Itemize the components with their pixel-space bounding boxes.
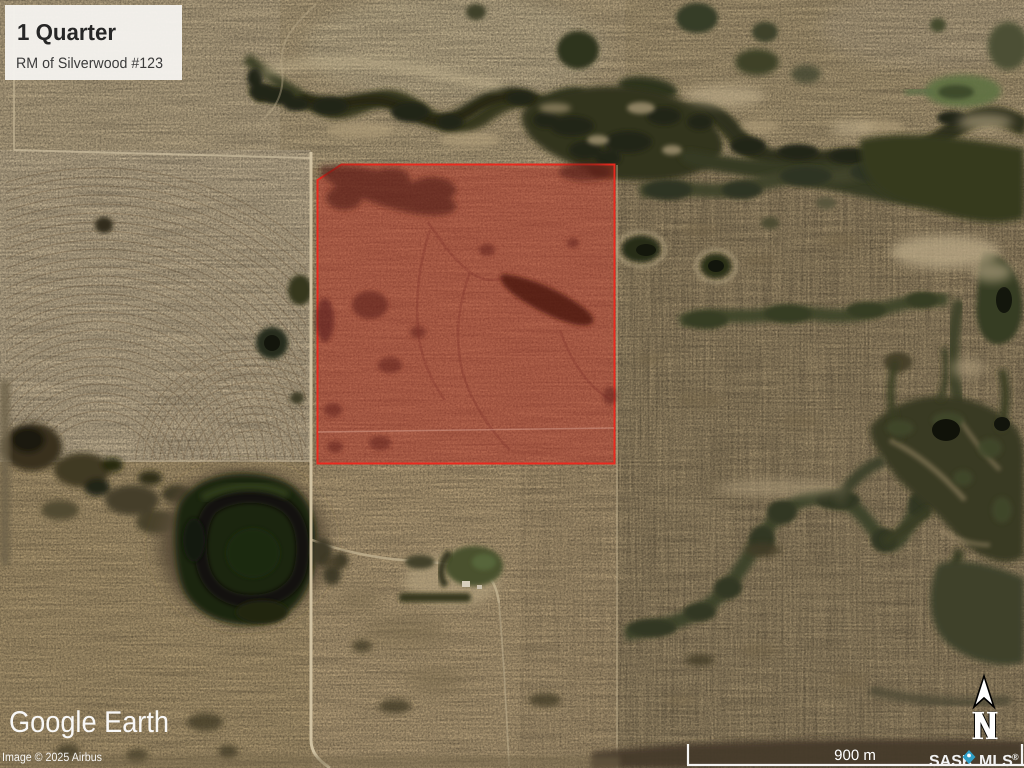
svg-text:RM of Silverwood #123: RM of Silverwood #123 [16,55,163,72]
svg-text:®: ® [1012,752,1019,762]
svg-text:Google Earth: Google Earth [9,706,169,739]
svg-text:Image © 2025 Airbus: Image © 2025 Airbus [2,750,102,764]
svg-text:1 Quarter: 1 Quarter [17,19,116,45]
svg-text:900 m: 900 m [834,747,876,764]
svg-text:MLS: MLS [979,753,1013,768]
